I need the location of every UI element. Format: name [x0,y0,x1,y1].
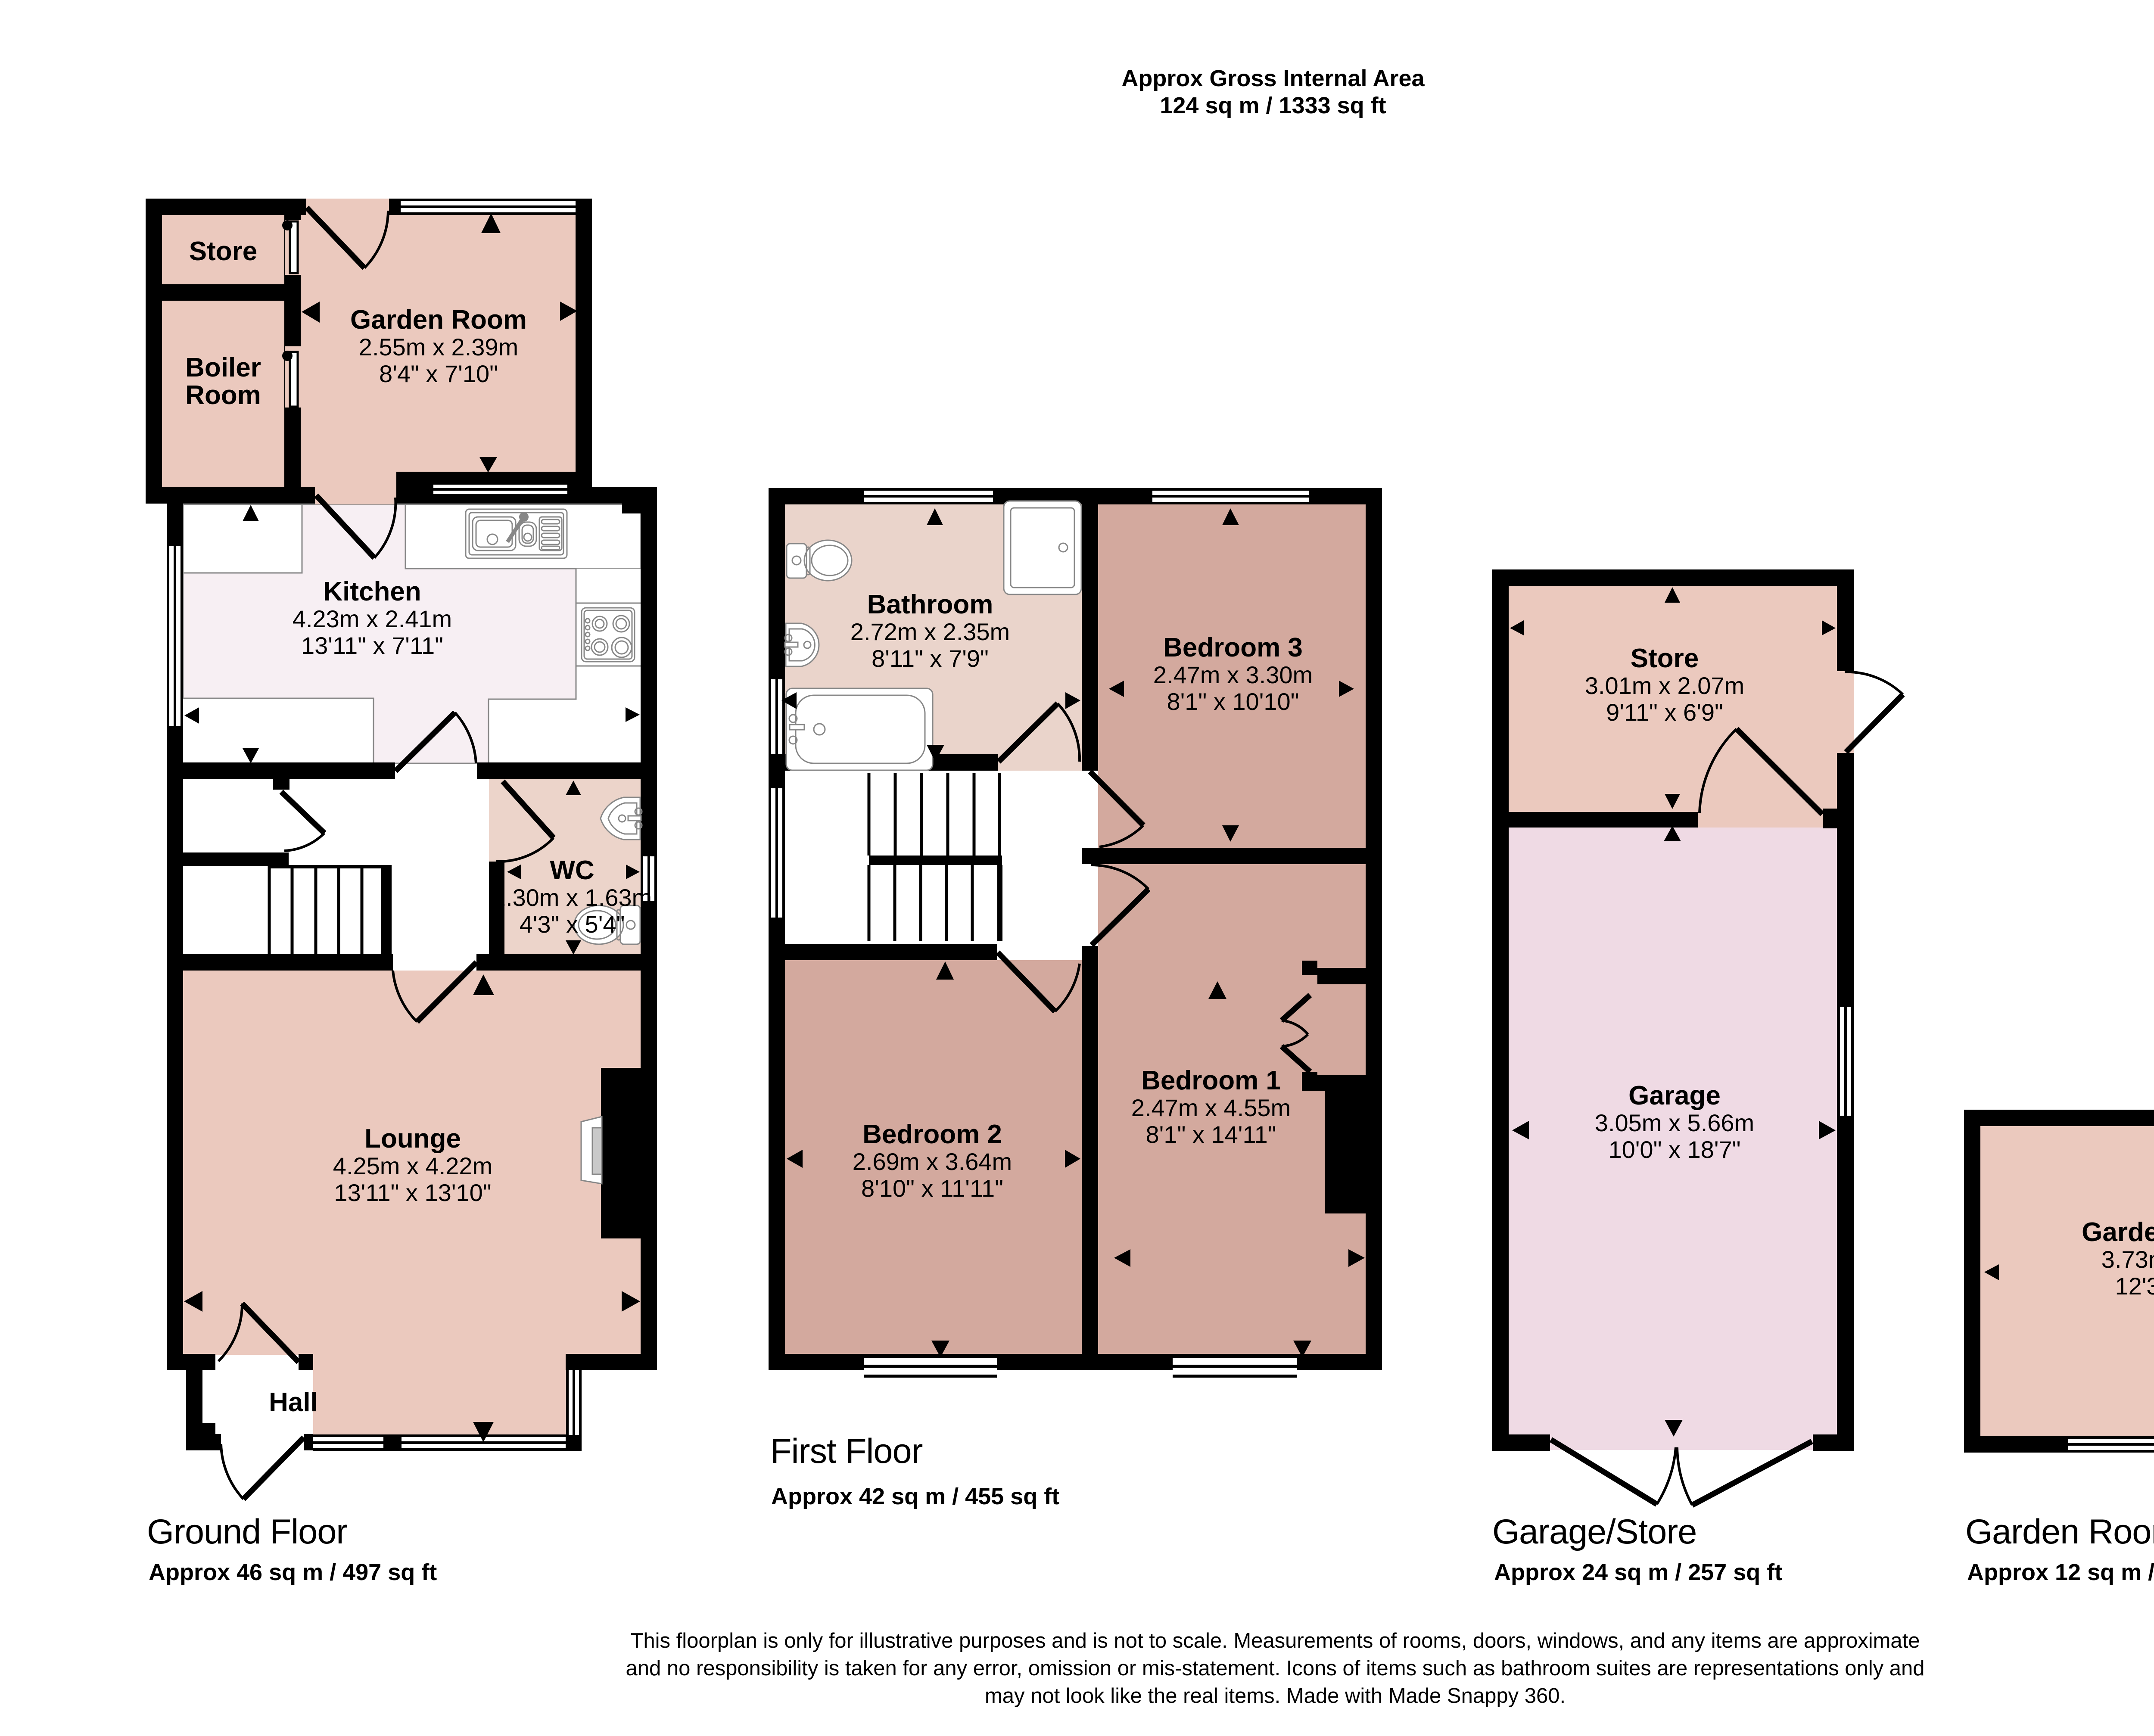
svg-text:Bathroom: Bathroom [867,590,993,619]
svg-text:2.47m x 3.30m: 2.47m x 3.30m [1153,661,1313,688]
svg-text:3.01m x 2.07m: 3.01m x 2.07m [1585,672,1744,699]
svg-text:Kitchen: Kitchen [323,577,421,607]
svg-text:Garage: Garage [1628,1081,1721,1111]
svg-text:Lounge: Lounge [364,1124,461,1154]
svg-text:Boiler: Boiler [185,353,261,383]
svg-text:Approx Gross Internal Area: Approx Gross Internal Area [1121,65,1425,91]
svg-text:Approx 46 sq m / 497 sq ft: Approx 46 sq m / 497 sq ft [149,1559,437,1585]
svg-text:10'0" x 18'7": 10'0" x 18'7" [1608,1136,1740,1163]
svg-text:Approx 12 sq m / 124 sq ft: Approx 12 sq m / 124 sq ft [1967,1559,2154,1585]
svg-text:4.23m x 2.41m: 4.23m x 2.41m [293,605,452,632]
svg-text:Hall: Hall [269,1388,318,1417]
svg-text:2.69m x 3.64m: 2.69m x 3.64m [853,1148,1012,1175]
svg-text:8'11" x 7'9": 8'11" x 7'9" [872,645,989,672]
svg-text:Bedroom 1: Bedroom 1 [1141,1066,1281,1095]
svg-text:Approx 42 sq m / 455 sq ft: Approx 42 sq m / 455 sq ft [771,1484,1059,1509]
svg-text:may not look like the real ite: may not look like the real items. Made w… [985,1684,1566,1708]
svg-text:Store: Store [189,236,257,266]
svg-text:Bedroom 3: Bedroom 3 [1163,633,1303,663]
svg-text:13'11" x 7'11": 13'11" x 7'11" [301,632,443,659]
svg-text:13'11" x 13'10": 13'11" x 13'10" [334,1179,491,1206]
svg-text:2.47m x 4.55m: 2.47m x 4.55m [1131,1094,1291,1121]
svg-text:Ground Floor: Ground Floor [147,1512,347,1551]
svg-text:3.05m x 5.66m: 3.05m x 5.66m [1595,1109,1754,1136]
svg-text:8'4" x 7'10": 8'4" x 7'10" [379,360,498,387]
svg-text:Garage/Store: Garage/Store [1492,1512,1696,1551]
svg-text:3.73m x 3.08m: 3.73m x 3.08m [2101,1246,2154,1273]
svg-text:9'11" x 6'9": 9'11" x 6'9" [1606,699,1723,726]
svg-text:124 sq m / 1333 sq ft: 124 sq m / 1333 sq ft [1160,93,1386,118]
svg-text:Bedroom 2: Bedroom 2 [862,1120,1002,1149]
svg-text:Garden Room: Garden Room [1965,1512,2154,1551]
svg-text:12'3" x 10'1": 12'3" x 10'1" [2115,1272,2154,1300]
svg-text:4.25m x 4.22m: 4.25m x 4.22m [333,1152,492,1179]
svg-text:Garden Room 2: Garden Room 2 [2082,1217,2154,1247]
svg-text:This floorplan is only for ill: This floorplan is only for illustrative … [630,1629,1920,1652]
svg-text:Approx 24 sq m / 257 sq ft: Approx 24 sq m / 257 sq ft [1494,1559,1782,1585]
svg-text:8'10" x 11'11": 8'10" x 11'11" [861,1175,1003,1202]
svg-text:Garden Room: Garden Room [350,305,527,335]
svg-text:Room: Room [185,380,261,410]
svg-text:2.72m x 2.35m: 2.72m x 2.35m [850,618,1010,645]
svg-text:4'3" x 5'4": 4'3" x 5'4" [520,911,625,938]
svg-text:WC: WC [550,856,594,885]
svg-text:and no responsibility is taken: and no responsibility is taken for any e… [626,1657,1925,1680]
svg-text:8'1" x 14'11": 8'1" x 14'11" [1146,1121,1276,1148]
svg-text:First Floor: First Floor [770,1432,923,1471]
svg-text:Store: Store [1631,644,1699,673]
svg-text:8'1" x 10'10": 8'1" x 10'10" [1167,688,1299,715]
svg-text:2.55m x 2.39m: 2.55m x 2.39m [359,333,518,361]
svg-text:1.30m x 1.63m: 1.30m x 1.63m [492,884,652,911]
